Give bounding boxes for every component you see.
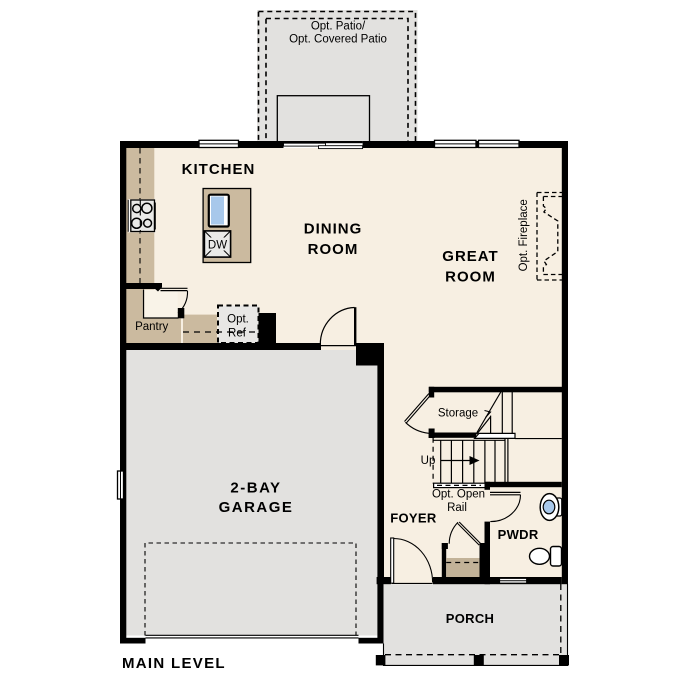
svg-text:GREAT: GREAT xyxy=(442,248,498,265)
svg-text:DINING: DINING xyxy=(304,221,363,238)
svg-text:FOYER: FOYER xyxy=(390,510,437,525)
svg-text:Up: Up xyxy=(421,455,436,467)
svg-text:PWDR: PWDR xyxy=(498,527,539,542)
svg-text:GARAGE: GARAGE xyxy=(219,499,294,516)
svg-text:Opt. Patio/: Opt. Patio/ xyxy=(311,21,366,33)
svg-text:Pantry: Pantry xyxy=(135,321,168,333)
svg-text:Ref: Ref xyxy=(228,328,247,340)
svg-text:Storage: Storage xyxy=(438,408,478,420)
svg-text:MAIN LEVEL: MAIN LEVEL xyxy=(122,655,226,672)
svg-text:Opt. Fireplace: Opt. Fireplace xyxy=(518,199,530,271)
svg-text:DW: DW xyxy=(208,240,227,252)
svg-text:Rail: Rail xyxy=(447,502,467,514)
svg-text:Opt. Open: Opt. Open xyxy=(432,489,485,501)
svg-text:Opt. Covered Patio: Opt. Covered Patio xyxy=(289,34,387,46)
svg-text:Opt.: Opt. xyxy=(227,314,249,326)
svg-text:ROOM: ROOM xyxy=(308,241,359,258)
svg-text:KITCHEN: KITCHEN xyxy=(182,161,256,178)
svg-text:ROOM: ROOM xyxy=(445,269,496,286)
svg-text:PORCH: PORCH xyxy=(446,611,494,626)
svg-text:2-BAY: 2-BAY xyxy=(230,480,281,497)
